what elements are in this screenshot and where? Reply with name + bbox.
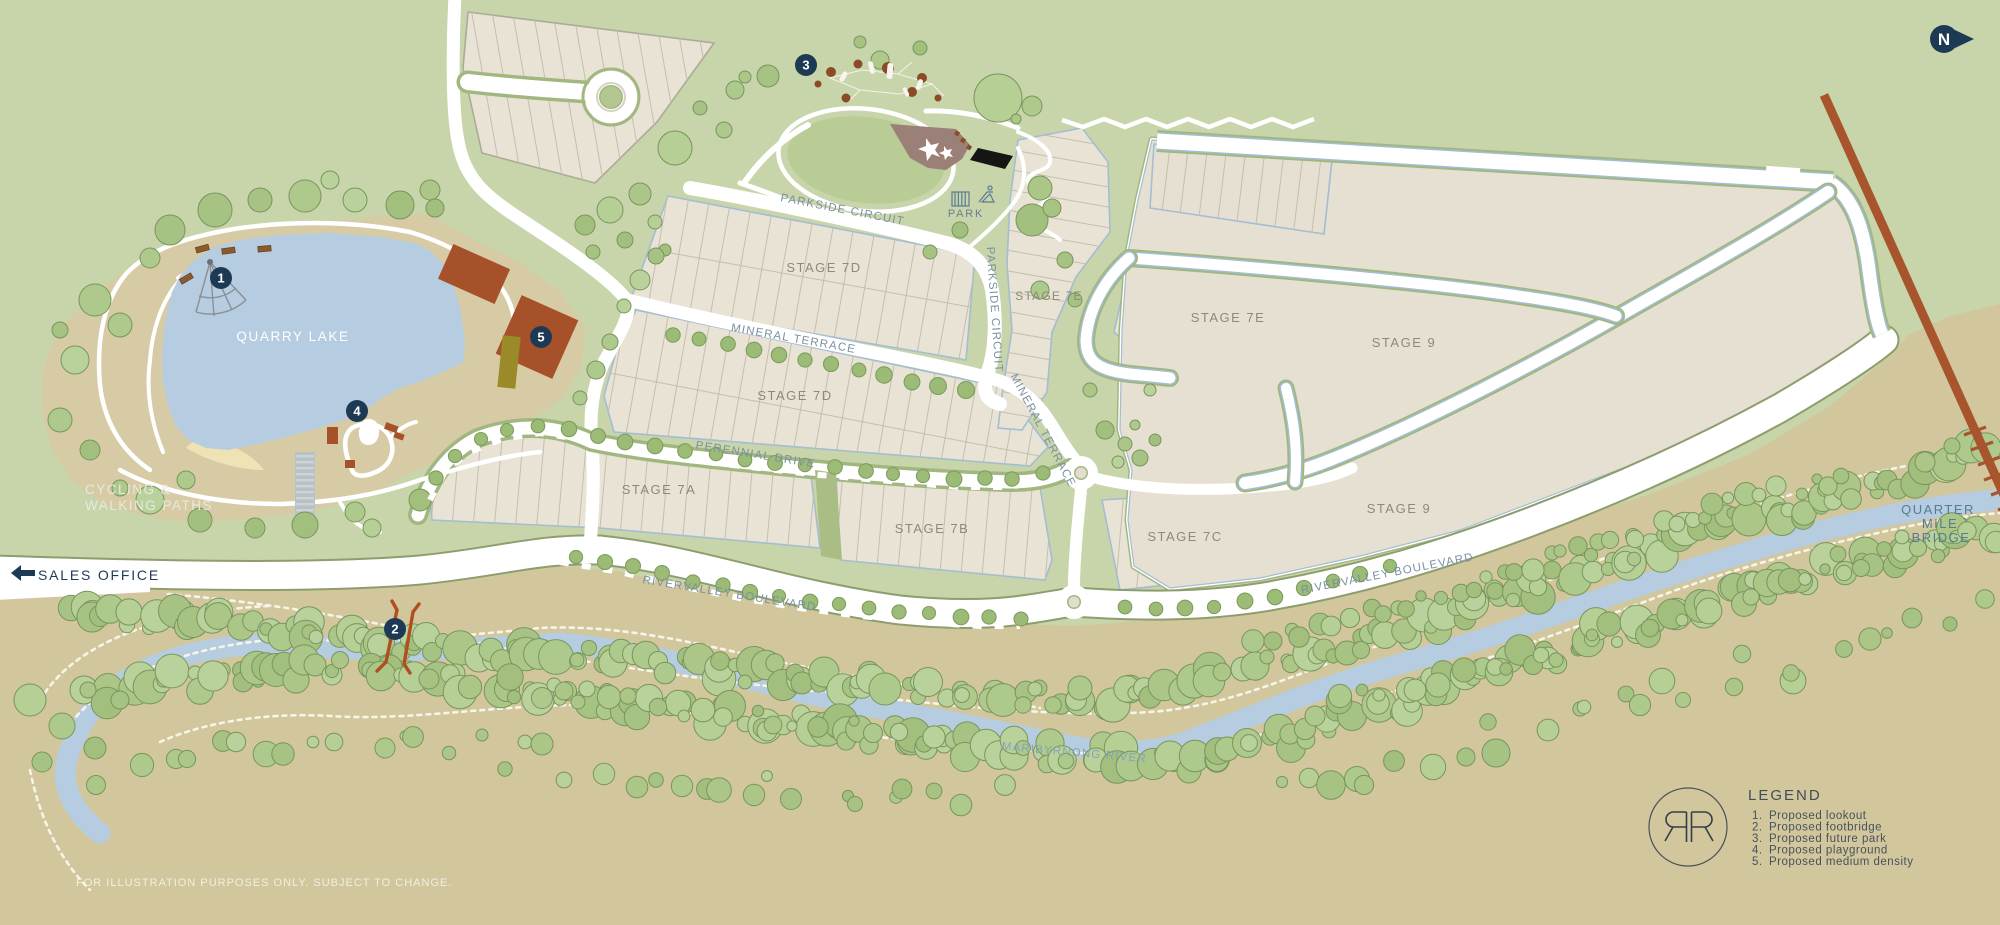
svg-text:Proposed future park: Proposed future park bbox=[1769, 833, 1886, 845]
svg-text:1.: 1. bbox=[1752, 810, 1763, 822]
svg-text:BRIDGE: BRIDGE bbox=[1912, 530, 1971, 545]
svg-text:4: 4 bbox=[353, 404, 361, 419]
svg-text:Proposed medium density: Proposed medium density bbox=[1769, 856, 1913, 868]
svg-text:QUARRY LAKE: QUARRY LAKE bbox=[236, 329, 349, 344]
svg-text:SALES OFFICE: SALES OFFICE bbox=[38, 567, 160, 583]
svg-text:STAGE 7E: STAGE 7E bbox=[1015, 289, 1082, 303]
svg-text:WALKING PATHS: WALKING PATHS bbox=[85, 498, 213, 513]
svg-text:2: 2 bbox=[391, 622, 398, 637]
svg-text:3.: 3. bbox=[1752, 833, 1763, 845]
svg-text:N: N bbox=[1938, 30, 1950, 49]
svg-text:2.: 2. bbox=[1752, 822, 1763, 834]
svg-text:STAGE 7E: STAGE 7E bbox=[1191, 310, 1266, 325]
svg-text:Proposed playground: Proposed playground bbox=[1769, 845, 1888, 857]
svg-text:1: 1 bbox=[217, 271, 224, 286]
svg-text:STAGE 7D: STAGE 7D bbox=[786, 260, 861, 275]
svg-text:5: 5 bbox=[537, 330, 544, 345]
svg-text:Proposed lookout: Proposed lookout bbox=[1769, 810, 1867, 822]
svg-text:5.: 5. bbox=[1752, 856, 1763, 868]
svg-text:STAGE 7B: STAGE 7B bbox=[895, 521, 970, 536]
svg-text:PARK: PARK bbox=[948, 208, 984, 220]
svg-text:STAGE 9: STAGE 9 bbox=[1372, 335, 1436, 350]
svg-text:STAGE 7A: STAGE 7A bbox=[622, 482, 697, 497]
svg-text:STAGE 9: STAGE 9 bbox=[1367, 501, 1431, 516]
svg-text:3: 3 bbox=[802, 58, 809, 73]
svg-text:MILE: MILE bbox=[1922, 516, 1958, 531]
svg-text:STAGE 7C: STAGE 7C bbox=[1147, 529, 1222, 544]
svg-text:LEGEND: LEGEND bbox=[1748, 787, 1822, 804]
svg-text:CYCLING &: CYCLING & bbox=[85, 482, 171, 497]
svg-text:FOR ILLUSTRATION PURPOSES ONLY: FOR ILLUSTRATION PURPOSES ONLY. SUBJECT … bbox=[76, 877, 452, 889]
svg-text:STAGE 7D: STAGE 7D bbox=[757, 388, 832, 403]
svg-text:Proposed footbridge: Proposed footbridge bbox=[1769, 822, 1882, 834]
svg-text:QUARTER: QUARTER bbox=[1901, 502, 1975, 517]
svg-text:4.: 4. bbox=[1752, 845, 1763, 857]
